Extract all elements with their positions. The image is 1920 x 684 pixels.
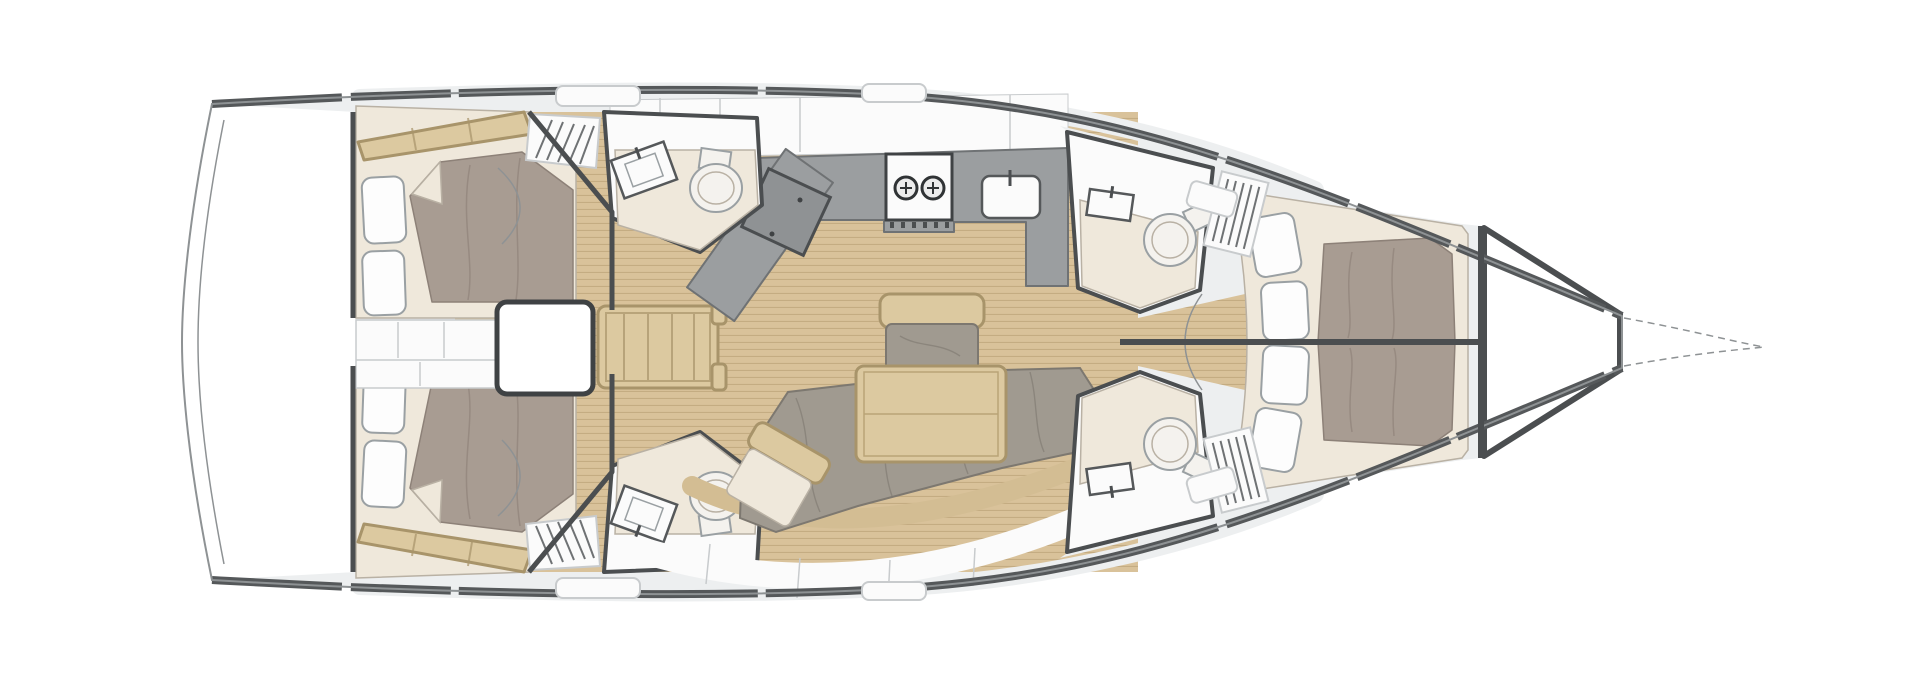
steps-rail <box>712 364 726 390</box>
faucet-icon <box>1111 186 1113 198</box>
transom-platform <box>182 104 356 580</box>
stove <box>886 154 952 228</box>
faucet-icon <box>1111 486 1113 498</box>
pillow <box>361 176 406 244</box>
companionway-steps <box>598 298 726 390</box>
bench-seat <box>880 294 984 374</box>
yacht-floor-plan <box>0 0 1920 684</box>
pillow <box>361 440 406 508</box>
knob-icon <box>798 198 803 203</box>
deck-hatch <box>862 582 926 600</box>
galley-sink <box>982 170 1040 218</box>
pillow <box>1261 281 1310 341</box>
knob-icon <box>770 232 775 237</box>
bow-stem-line <box>1624 347 1764 366</box>
engine-compartment <box>497 302 593 394</box>
pillow <box>362 250 406 315</box>
pillow <box>1261 345 1310 405</box>
bow-stem-line <box>1624 318 1764 347</box>
yacht-floor-plan-canvas <box>0 0 1920 684</box>
corridor-floor <box>356 320 497 388</box>
deck-hatch <box>556 86 640 106</box>
deck-hatch <box>556 578 640 598</box>
aft-cabin-starboard <box>356 366 600 578</box>
deck-hatch <box>862 84 926 102</box>
aft-cabin-port <box>356 106 600 318</box>
anchor-locker <box>1484 228 1620 456</box>
steps-frame <box>598 306 718 388</box>
